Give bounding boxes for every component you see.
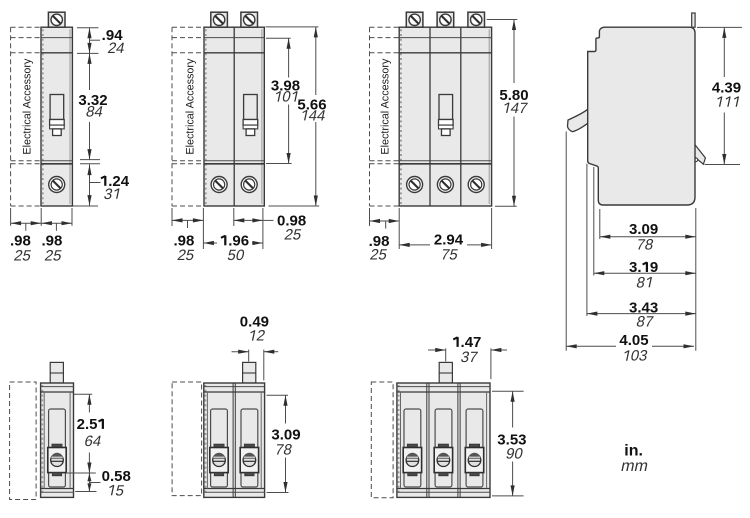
svg-text:03: 03 bbox=[629, 348, 649, 365]
svg-text:Electrical Accessory: Electrical Accessory bbox=[185, 58, 197, 155]
svg-text:25: 25 bbox=[176, 247, 196, 264]
svg-text:47: 47 bbox=[509, 100, 529, 117]
svg-text:3.09: 3.09 bbox=[629, 221, 658, 238]
svg-text:25: 25 bbox=[43, 248, 63, 265]
svg-text:Electrical Accessory: Electrical Accessory bbox=[380, 58, 392, 155]
svg-text:mm: mm bbox=[619, 457, 649, 475]
svg-text:78: 78 bbox=[273, 442, 293, 459]
svg-text:87: 87 bbox=[635, 314, 655, 331]
svg-text:3.: 3. bbox=[629, 259, 642, 276]
svg-text:78: 78 bbox=[635, 237, 655, 254]
svg-text:75: 75 bbox=[439, 247, 459, 264]
svg-text:Electrical Accessory: Electrical Accessory bbox=[22, 58, 34, 155]
svg-text:25: 25 bbox=[12, 248, 32, 265]
svg-text:2.5: 2.5 bbox=[77, 416, 98, 433]
svg-text:25: 25 bbox=[368, 247, 388, 264]
svg-text:4.39: 4.39 bbox=[712, 80, 741, 97]
svg-text:4.05: 4.05 bbox=[619, 332, 648, 349]
svg-text:37: 37 bbox=[459, 349, 479, 366]
svg-text:90: 90 bbox=[504, 446, 524, 463]
svg-text:9: 9 bbox=[650, 259, 658, 276]
svg-text:50: 50 bbox=[226, 247, 246, 264]
svg-text:44: 44 bbox=[307, 108, 327, 125]
svg-text:0.58: 0.58 bbox=[102, 468, 131, 485]
svg-text:84: 84 bbox=[84, 104, 104, 121]
svg-text:25: 25 bbox=[283, 227, 303, 244]
svg-text:64: 64 bbox=[83, 433, 103, 450]
svg-text:24: 24 bbox=[106, 40, 126, 57]
